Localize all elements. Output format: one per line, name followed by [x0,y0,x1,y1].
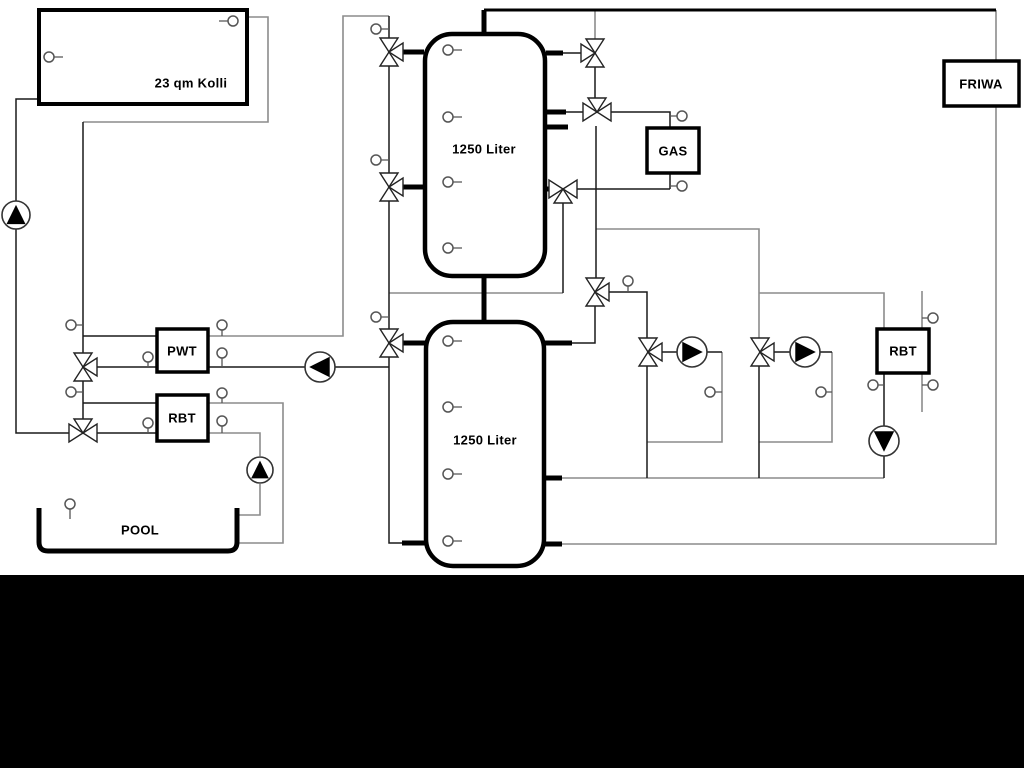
lower-tank-label: 1250 Liter [453,433,517,448]
sensor-icon [143,352,153,362]
sensor-icon [217,320,227,330]
sensor-icon [816,387,826,397]
sensor-icon [443,243,453,253]
pool-label: POOL [121,523,159,538]
schematic-page: 23 qm Kolli 1250 Liter 1250 Liter PWT RB… [0,0,1024,768]
bottom-black-bar [0,575,1024,768]
sensor-icon [443,177,453,187]
upper-tank-label: 1250 Liter [452,142,516,157]
sensor-icon [443,469,453,479]
sensor-icon [143,418,153,428]
valve-gas-supply-icon [583,98,611,121]
gas-label: GAS [658,144,687,159]
sensor-icon [623,276,633,286]
valve-heating-circuit-2-icon [751,338,774,366]
sensor-icon [443,402,453,412]
sensor-icon [66,387,76,397]
sensor-icon [217,416,227,426]
valve-tank2-upper-left-icon [380,329,403,357]
sensor-icon [217,348,227,358]
valve-tank1-upper-left-icon [380,38,403,66]
valve-distribution-icon [586,278,609,306]
sensor-icon [443,336,453,346]
valve-solar-pwt-icon [74,353,97,381]
heating-circuit-2-pump-icon [790,337,820,367]
heating-rbt-pump-icon [869,426,899,456]
valve-gas-return-icon [549,180,577,203]
sensor-icon [217,388,227,398]
sensor-icon [371,24,381,34]
pool-pump-icon [247,457,273,483]
sensor-icon [677,111,687,121]
heating-rbt-label: RBT [889,344,917,359]
sensor-icon [868,380,878,390]
sensor-icon [443,45,453,55]
heating-circuit-1-pump-icon [677,337,707,367]
valve-heating-circuit-1-icon [639,338,662,366]
sensor-icon [443,112,453,122]
sensor-icon [928,313,938,323]
solar-pump-icon [2,201,30,229]
sensor-icon [928,380,938,390]
sensor-icon [65,499,75,509]
valve-solar-pool-icon [69,419,97,442]
sensor-icon [44,52,54,62]
sensor-icon [371,312,381,322]
valve-tank1-lower-left-icon [380,173,403,201]
sensor-icon [443,536,453,546]
sensor-icon [677,181,687,191]
valve-tank1-upper-right-icon [581,39,604,67]
sensor-icon [66,320,76,330]
pool-rbt-label: RBT [168,411,196,426]
pwt-pump-icon [305,352,335,382]
sensor-icon [371,155,381,165]
collector-label: 23 qm Kolli [155,76,228,91]
friwa-label: FRIWA [959,77,1002,92]
pwt-label: PWT [167,344,197,359]
sensor-icon [228,16,238,26]
sensor-icon [705,387,715,397]
